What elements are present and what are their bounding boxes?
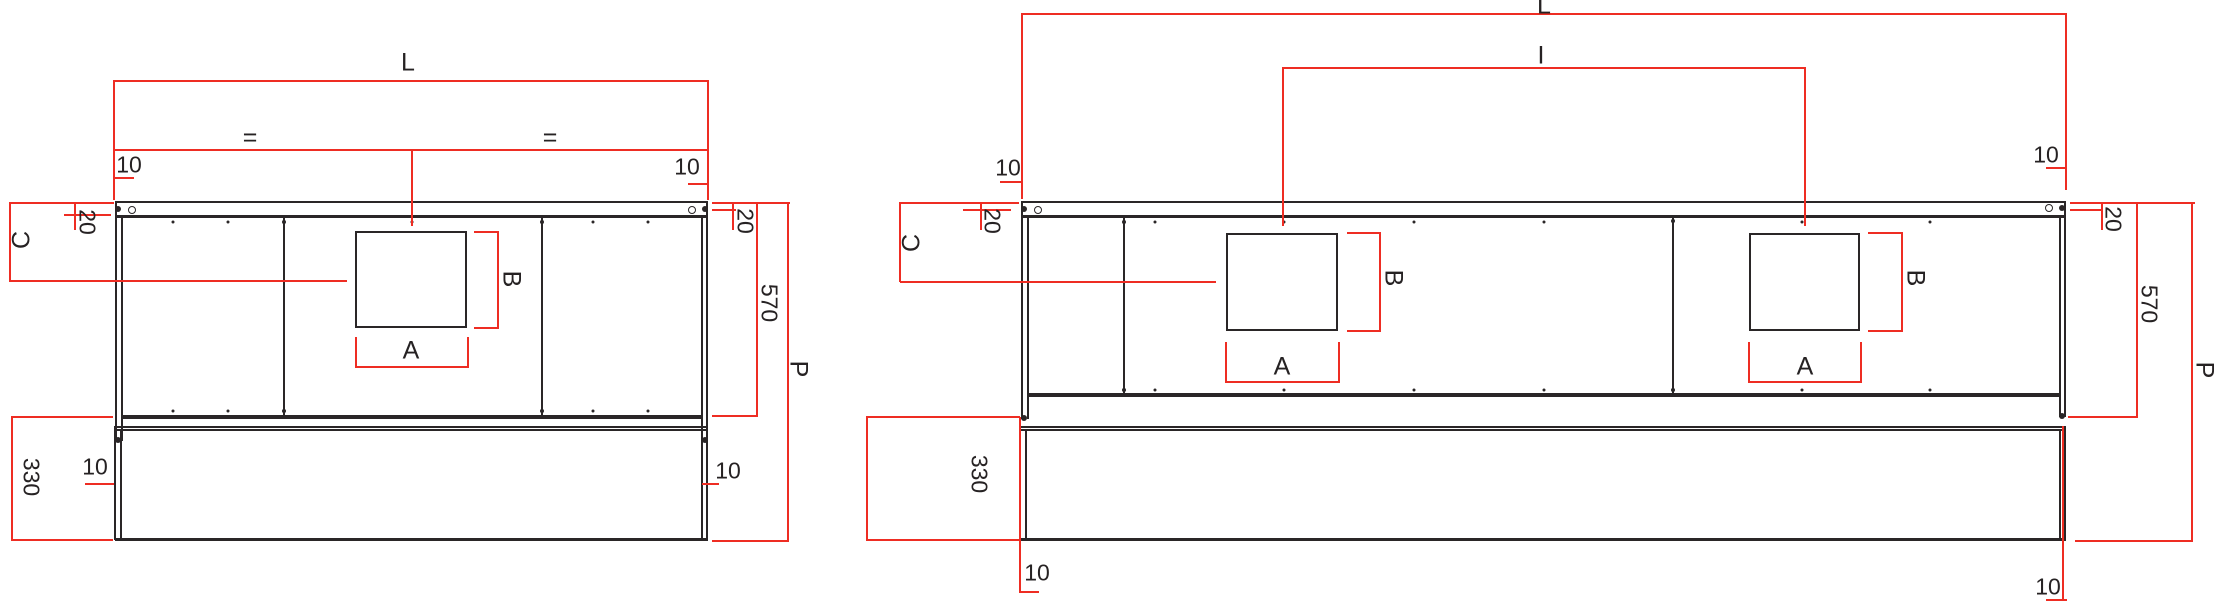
top-rail-top-edge <box>1022 201 2066 203</box>
hole-dot <box>1283 389 1286 392</box>
left-wall-inner <box>1027 217 1029 419</box>
dim-10-tick <box>1000 181 1022 183</box>
dim-A-leg <box>1338 342 1340 383</box>
dim-label-10: 10 <box>82 456 108 479</box>
divider-line <box>1123 218 1125 393</box>
screw-hole <box>128 206 136 214</box>
dim-A-line <box>1749 381 1862 383</box>
divider-line <box>541 218 543 415</box>
dim-A-leg <box>1225 342 1227 383</box>
hole-dot <box>592 221 595 224</box>
screw-hole <box>2045 204 2053 212</box>
panel-top-line2 <box>115 429 708 431</box>
dim-label-10: 10 <box>2033 144 2059 167</box>
top-rail-bottom-edge <box>1022 215 2066 218</box>
dim-330-line <box>866 417 868 541</box>
dim-label-A: A <box>1274 355 1291 380</box>
dim-B-tick <box>1868 330 1903 332</box>
panel-right-outer <box>2064 426 2066 540</box>
dim-10-line <box>1019 417 1021 592</box>
dim-label-I: I <box>1538 44 1545 69</box>
dim-B-tick <box>1347 232 1381 234</box>
opening <box>1749 233 1860 331</box>
dim-570-tick <box>2068 416 2138 418</box>
dim-label-B: B <box>1903 270 1928 287</box>
dim-20-top <box>2070 202 2195 204</box>
dim-C-bottom <box>900 281 1216 283</box>
left-wall-inner <box>121 217 123 441</box>
dim-label-equal: = <box>243 126 258 151</box>
dim-label-10: 10 <box>674 156 700 179</box>
dim-20-tick <box>2070 209 2102 211</box>
panel-left-inner <box>1025 429 1027 540</box>
right-wall-outer <box>2064 201 2066 417</box>
panel-top-line2 <box>1020 429 2066 431</box>
dim-B-tick <box>1868 232 1903 234</box>
hole-dot <box>647 410 650 413</box>
hole-dot <box>1671 388 1675 392</box>
dim-I-leg <box>1282 67 1284 226</box>
dim-center-leg <box>411 149 413 226</box>
dim-330-tick <box>866 539 1020 541</box>
hole-dot <box>1929 221 1932 224</box>
dim-label-equal: = <box>543 126 558 151</box>
dim-label-20: 20 <box>2102 206 2125 232</box>
dim-P-tick <box>712 540 789 542</box>
dim-A-leg <box>1860 342 1862 383</box>
wall-end-cap <box>115 437 121 443</box>
hole-dot <box>540 409 544 413</box>
dim-L-leg <box>2065 13 2067 190</box>
dim-label-P: P <box>786 361 811 378</box>
dim-10-tick <box>688 183 708 185</box>
hole-dot <box>1543 389 1546 392</box>
hole-dot <box>1413 221 1416 224</box>
drawing-canvas: L = = 10 10 C 20 20 570 P B A 330 10 10 <box>0 0 2221 606</box>
dim-P-tick <box>2075 540 2193 542</box>
right-wall-inner <box>2059 217 2061 417</box>
dim-A-leg <box>355 337 357 368</box>
right-wall-outer <box>706 201 708 441</box>
dim-label-20: 20 <box>981 208 1004 234</box>
dim-570-tick <box>712 415 758 417</box>
hole-dot <box>282 409 286 413</box>
dim-A-leg <box>467 337 469 368</box>
dim-label-P: P <box>2192 362 2217 379</box>
dim-label-B: B <box>1381 270 1406 287</box>
hole-dot <box>1671 219 1675 223</box>
hole-dot <box>1413 389 1416 392</box>
dim-A-line <box>355 366 469 368</box>
dim-L-leg <box>113 80 115 200</box>
left-wall-outer <box>115 201 117 441</box>
corner-rivet <box>702 206 708 212</box>
panel-top-line1 <box>115 426 708 428</box>
hole-dot <box>227 410 230 413</box>
panel-left-inner <box>120 429 122 540</box>
panel-bottom-line <box>1020 538 2066 541</box>
dim-label-A: A <box>403 339 420 364</box>
dim-C-bottom <box>10 280 347 282</box>
dim-label-10: 10 <box>995 157 1021 180</box>
dim-label-L: L <box>1537 0 1551 19</box>
panel-right-inner <box>2059 429 2061 540</box>
corner-rivet <box>115 206 121 212</box>
dim-C-top <box>900 202 1019 204</box>
dim-L-leg <box>707 80 709 200</box>
dim-20-top <box>712 202 790 204</box>
dim-L-leg <box>1021 13 1023 199</box>
dim-label-570: 570 <box>758 284 781 322</box>
dim-B-tick <box>474 231 499 233</box>
hole-dot <box>1929 389 1932 392</box>
right-wall-inner <box>701 217 703 441</box>
dim-label-570: 570 <box>2138 285 2161 323</box>
dim-label-C: C <box>10 231 35 249</box>
dim-330-line <box>11 417 13 541</box>
dim-L-line <box>114 80 708 82</box>
dim-I-leg <box>1804 67 1806 226</box>
dim-label-20: 20 <box>76 209 99 235</box>
dim-label-A: A <box>1797 355 1814 380</box>
dim-label-L: L <box>401 51 415 76</box>
dim-label-C: C <box>900 234 925 252</box>
hole-dot <box>647 221 650 224</box>
dim-B-tick <box>1347 330 1381 332</box>
dim-330-tick <box>866 416 1020 418</box>
dim-label-10: 10 <box>1024 562 1050 585</box>
dim-A-leg <box>1748 342 1750 383</box>
corner-rivet <box>1021 206 1027 212</box>
dim-label-10: 10 <box>715 460 741 483</box>
hole-dot <box>1122 388 1126 392</box>
dim-label-20: 20 <box>734 208 757 234</box>
dim-label-10: 10 <box>2035 576 2061 599</box>
dim-label-330: 330 <box>20 458 43 496</box>
divider-line <box>283 218 285 415</box>
hole-dot <box>1543 221 1546 224</box>
wall-end-cap <box>1021 415 1027 421</box>
wall-end-cap <box>2059 413 2065 419</box>
panel-left-outer <box>114 426 116 540</box>
dim-A-line <box>1226 381 1340 383</box>
screw-hole <box>688 206 696 214</box>
hole-dot <box>227 221 230 224</box>
opening <box>355 231 467 328</box>
screw-hole <box>1034 206 1042 214</box>
hole-dot <box>540 220 544 224</box>
hole-dot <box>1801 389 1804 392</box>
corner-rivet <box>2059 205 2065 211</box>
dim-C-top <box>10 202 114 204</box>
hole-dot <box>1122 220 1126 224</box>
dim-10-tick <box>1019 591 1039 593</box>
dim-10-tick <box>85 483 114 485</box>
divider-line <box>1672 218 1674 393</box>
dim-10-line <box>2062 426 2064 600</box>
dim-330-tick <box>11 539 113 541</box>
bottom-rail <box>122 415 702 419</box>
panel-bottom-line <box>115 538 708 541</box>
dim-330-tick <box>11 416 113 418</box>
left-wall-outer <box>1021 201 1023 419</box>
dim-label-10: 10 <box>116 154 142 177</box>
opening <box>1226 233 1338 331</box>
bottom-rail <box>1028 393 2060 397</box>
panel-top-line1 <box>1020 426 2066 428</box>
hole-dot <box>172 221 175 224</box>
hole-dot <box>592 410 595 413</box>
dim-label-330: 330 <box>968 455 991 493</box>
dim-label-B: B <box>499 271 524 288</box>
hole-dot <box>1154 221 1157 224</box>
hole-dot <box>1154 389 1157 392</box>
hole-dot <box>172 410 175 413</box>
dim-B-tick <box>474 327 499 329</box>
hole-dot <box>282 220 286 224</box>
wall-end-cap <box>702 437 708 443</box>
